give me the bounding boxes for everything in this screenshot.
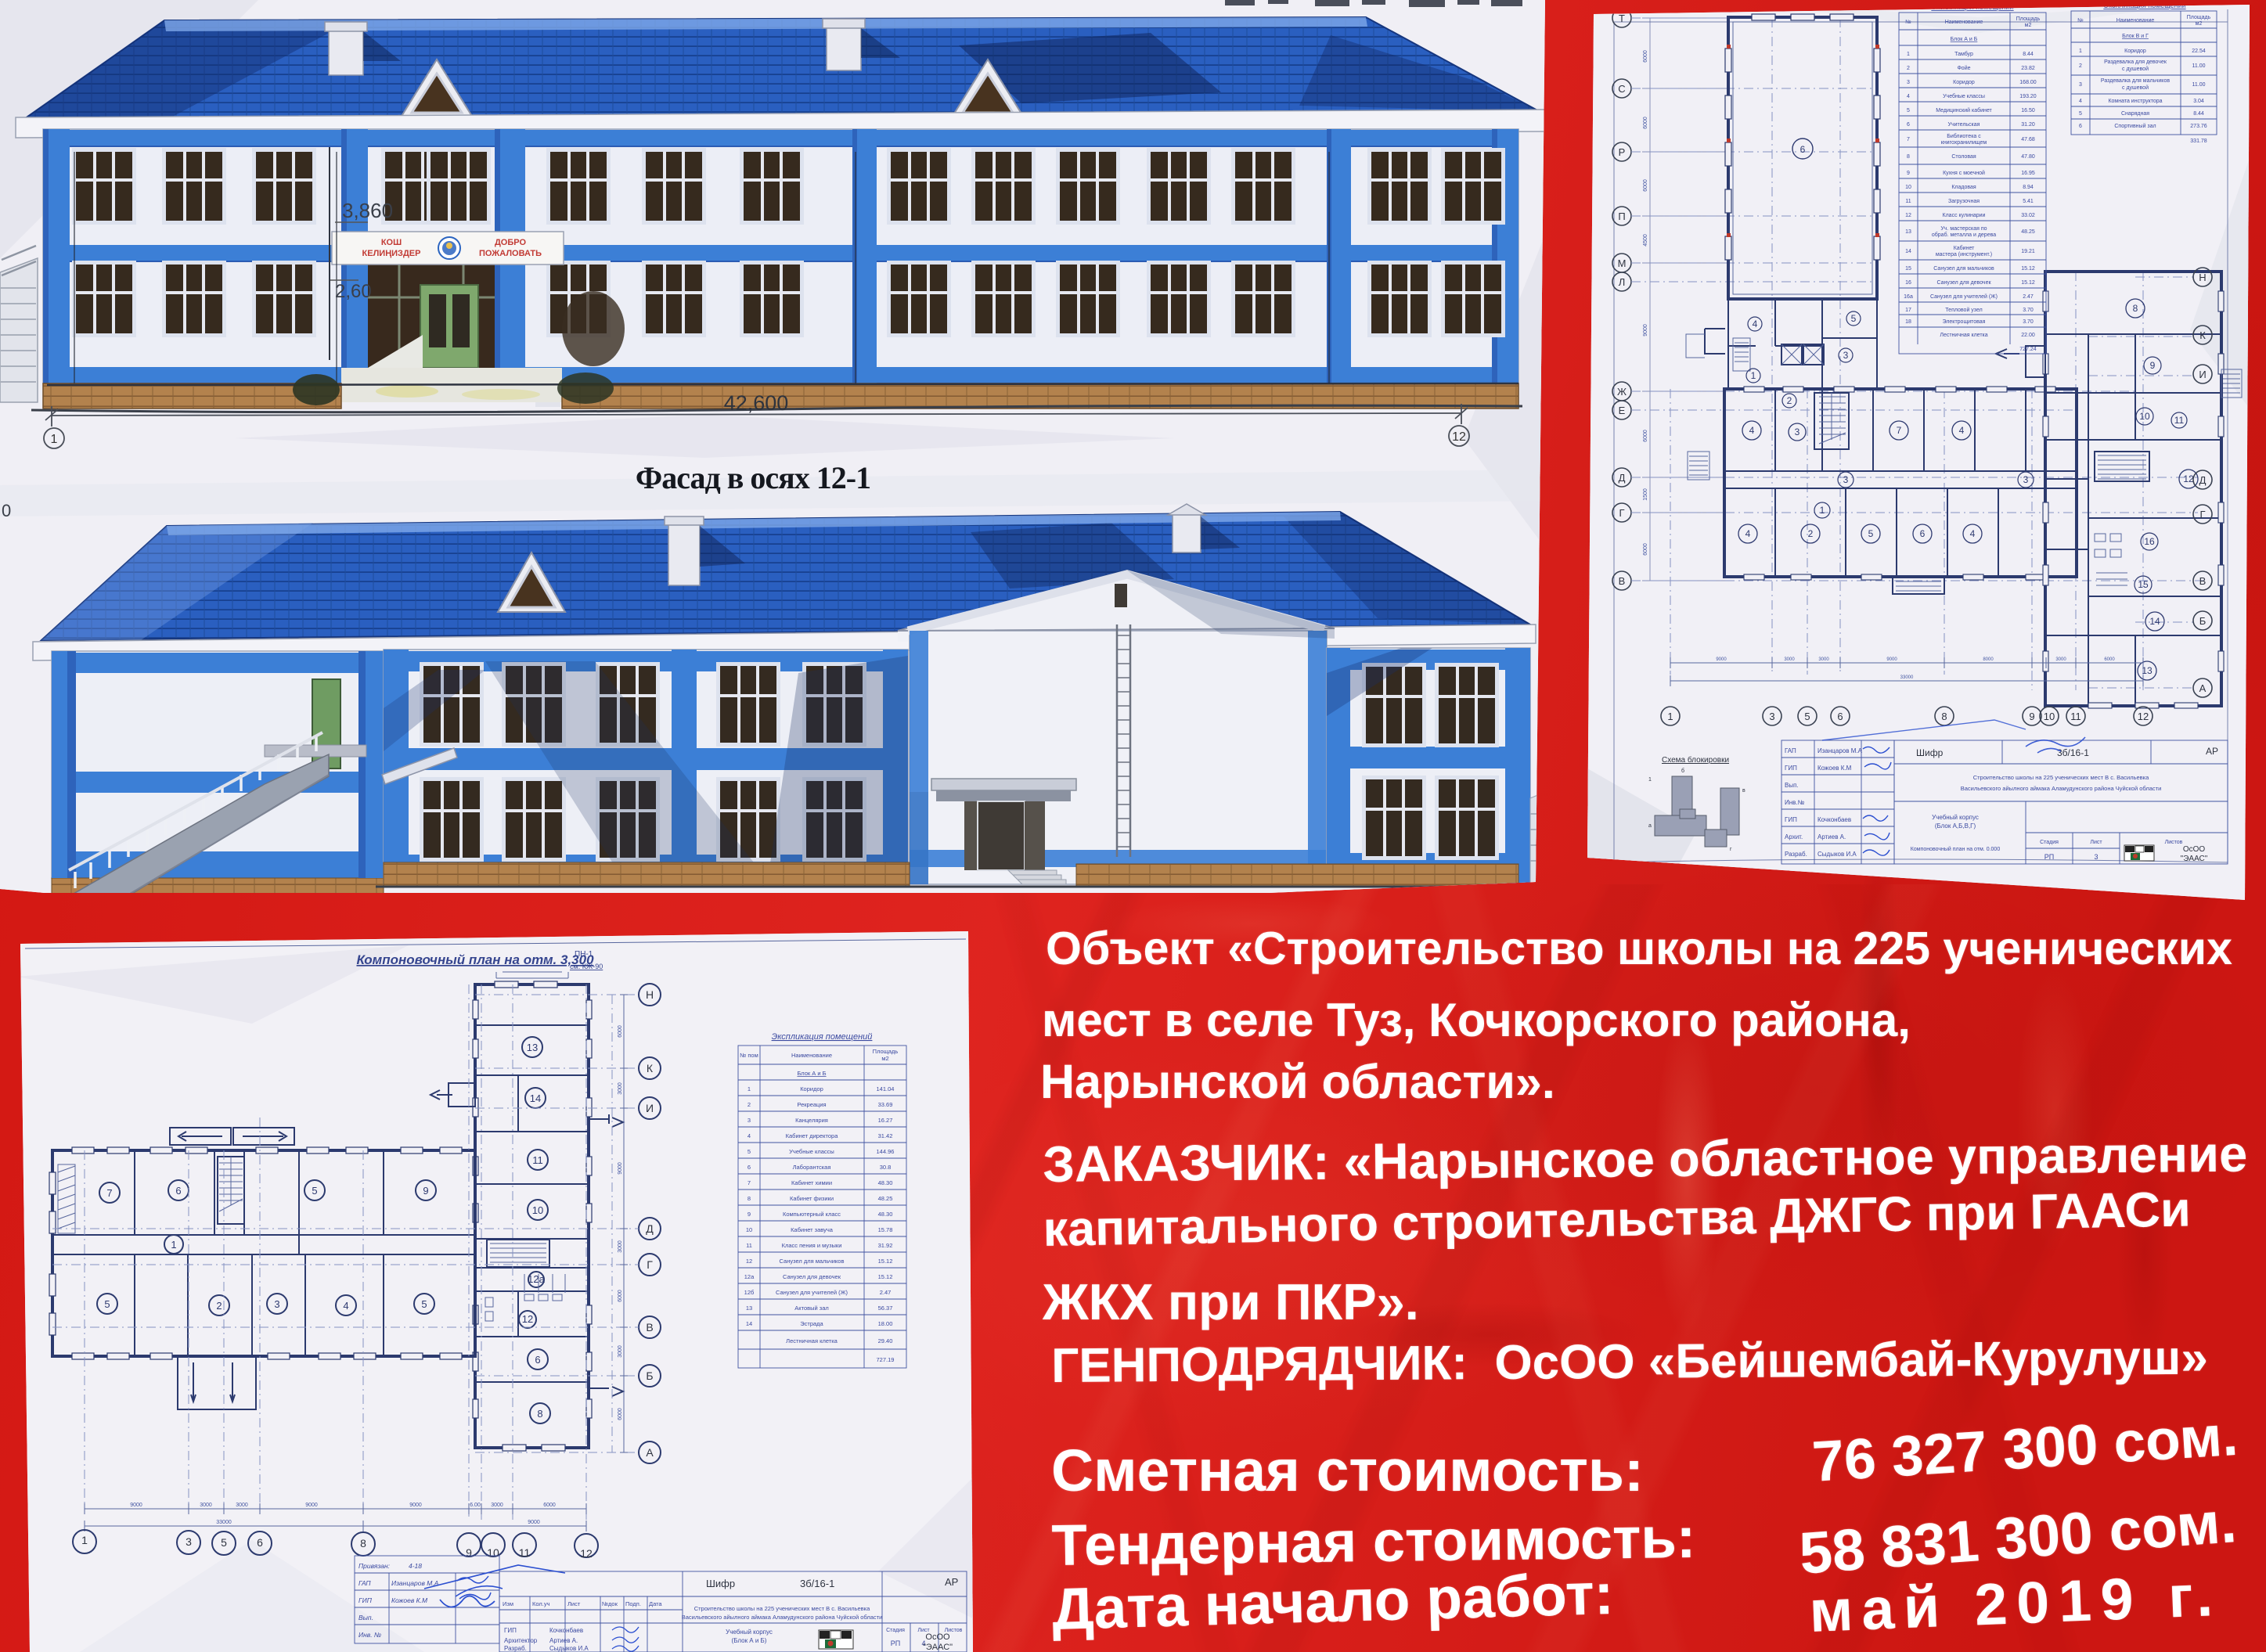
svg-text:16.95: 16.95 <box>2021 171 2035 176</box>
svg-text:Наименование: Наименование <box>791 1052 832 1059</box>
svg-text:1: 1 <box>2079 49 2082 54</box>
svg-text:2: 2 <box>2079 63 2082 69</box>
svg-text:4: 4 <box>343 1300 348 1312</box>
svg-text:Загрузочная: Загрузочная <box>1948 199 1980 204</box>
svg-text:8: 8 <box>748 1195 751 1202</box>
svg-text:3000: 3000 <box>236 1503 248 1508</box>
svg-text:10: 10 <box>1905 185 1911 190</box>
svg-text:АР: АР <box>945 1576 958 1588</box>
svg-text:4: 4 <box>1753 319 1758 329</box>
svg-text:5: 5 <box>104 1298 110 1310</box>
svg-text:3.70: 3.70 <box>2023 308 2034 313</box>
svg-text:Кладовая: Кладовая <box>1951 185 1976 190</box>
svg-text:12: 12 <box>2183 473 2194 484</box>
svg-text:6000: 6000 <box>2104 657 2115 662</box>
svg-text:5: 5 <box>2079 111 2082 117</box>
svg-text:33000: 33000 <box>1900 675 1914 680</box>
svg-text:Компьютерный класс: Компьютерный класс <box>783 1211 841 1218</box>
svg-text:2: 2 <box>1907 66 1910 71</box>
svg-text:обраб. металла и дерева: обраб. металла и дерева <box>1932 232 1996 238</box>
svg-text:18.00: 18.00 <box>878 1320 893 1327</box>
svg-text:12: 12 <box>522 1313 533 1325</box>
svg-text:№док: №док <box>602 1600 618 1607</box>
svg-text:11: 11 <box>746 1242 752 1249</box>
svg-text:Р: Р <box>1619 146 1626 158</box>
svg-text:см. КЖ-90: см. КЖ-90 <box>570 963 603 970</box>
svg-text:Изанцаров М.А: Изанцаров М.А <box>1817 747 1863 754</box>
svg-text:12а: 12а <box>744 1273 755 1280</box>
svg-text:3000: 3000 <box>491 1503 503 1508</box>
svg-text:8: 8 <box>1941 711 1947 722</box>
svg-text:5: 5 <box>312 1185 317 1197</box>
svg-text:ПОЖАЛОВАТЬ: ПОЖАЛОВАТЬ <box>479 249 542 258</box>
svg-text:Кабинет: Кабинет <box>1954 245 1975 251</box>
svg-text:Компоновочный план на отм. 0.0: Компоновочный план на отм. 0.000 <box>1911 846 2001 852</box>
svg-text:Электрощитовая: Электрощитовая <box>1943 319 1986 325</box>
svg-text:9: 9 <box>2150 360 2156 371</box>
svg-text:8: 8 <box>360 1537 366 1549</box>
svg-text:Кожоев К.М: Кожоев К.М <box>1817 765 1852 772</box>
svg-text:6: 6 <box>257 1536 263 1549</box>
svg-text:6.00: 6.00 <box>470 1503 481 1508</box>
svg-text:Б: Б <box>2199 615 2207 627</box>
svg-text:Кочконбаев: Кочконбаев <box>549 1627 583 1634</box>
svg-text:3: 3 <box>186 1535 192 1548</box>
svg-text:3: 3 <box>1843 350 1849 361</box>
svg-text:6000: 6000 <box>618 1408 623 1420</box>
svg-text:7: 7 <box>1907 137 1910 142</box>
svg-text:9000: 9000 <box>1643 324 1648 337</box>
svg-text:331.78: 331.78 <box>2190 139 2207 144</box>
svg-text:К: К <box>647 1062 654 1074</box>
svg-text:Кабинет завуча: Кабинет завуча <box>791 1226 834 1233</box>
svg-text:5: 5 <box>1851 313 1857 324</box>
svg-text:3б/16-1: 3б/16-1 <box>800 1578 834 1589</box>
svg-text:273.76: 273.76 <box>2190 124 2207 129</box>
svg-text:Лестничная клетка: Лестничная клетка <box>786 1337 838 1344</box>
svg-text:м2: м2 <box>2196 21 2203 27</box>
svg-text:4: 4 <box>1970 528 1976 539</box>
svg-text:Медицинский кабинет: Медицинский кабинет <box>1936 107 1992 113</box>
svg-text:книгохранилищем: книгохранилищем <box>1941 140 1987 146</box>
svg-text:Стадия: Стадия <box>2040 840 2059 845</box>
svg-text:7: 7 <box>748 1179 751 1186</box>
svg-text:А: А <box>2199 682 2207 694</box>
svg-text:3: 3 <box>1795 426 1800 437</box>
svg-text:42,600: 42,600 <box>724 391 789 415</box>
svg-text:а: а <box>1648 823 1652 829</box>
svg-text:15: 15 <box>2138 579 2149 590</box>
svg-text:Листов: Листов <box>2165 840 2183 845</box>
svg-text:Архитектор: Архитектор <box>504 1637 538 1644</box>
svg-text:Кочконбаев: Кочконбаев <box>1817 816 1851 823</box>
svg-text:2: 2 <box>748 1101 751 1108</box>
svg-text:Санузел для девочек: Санузел для девочек <box>783 1273 841 1280</box>
svg-text:Коридор: Коридор <box>1953 80 1975 85</box>
svg-text:1: 1 <box>51 433 58 446</box>
svg-text:6: 6 <box>2079 124 2082 129</box>
svg-text:Разраб.: Разраб. <box>504 1645 527 1652</box>
svg-text:Снарядная: Снарядная <box>2121 111 2149 117</box>
svg-text:16.50: 16.50 <box>2021 108 2035 113</box>
svg-text:10: 10 <box>746 1226 752 1233</box>
svg-text:Н: Н <box>2199 272 2206 283</box>
svg-text:56.37: 56.37 <box>878 1305 893 1312</box>
svg-text:8: 8 <box>2133 303 2138 314</box>
svg-text:Площадь: Площадь <box>2187 15 2211 20</box>
svg-text:1: 1 <box>81 1534 88 1546</box>
svg-text:30.8: 30.8 <box>880 1164 892 1171</box>
svg-text:15.12: 15.12 <box>2021 266 2035 272</box>
svg-text:С: С <box>1618 83 1625 95</box>
svg-text:КОШ: КОШ <box>381 238 402 247</box>
svg-text:7: 7 <box>1897 425 1902 436</box>
svg-text:Строительство школы на 225 уче: Строительство школы на 225 ученических м… <box>1973 774 2149 781</box>
svg-text:Е: Е <box>1619 405 1626 416</box>
svg-text:31.42: 31.42 <box>878 1132 893 1139</box>
svg-text:10: 10 <box>2044 711 2055 722</box>
svg-text:ГИП: ГИП <box>1785 765 1797 772</box>
svg-text:15.12: 15.12 <box>2021 280 2035 286</box>
svg-text:14: 14 <box>746 1320 752 1327</box>
svg-text:Актовый зал: Актовый зал <box>794 1305 829 1312</box>
svg-text:Кабинет физики: Кабинет физики <box>790 1195 834 1202</box>
svg-text:6: 6 <box>535 1354 540 1366</box>
svg-text:3: 3 <box>1769 711 1774 722</box>
svg-text:10: 10 <box>487 1546 499 1559</box>
svg-text:3000: 3000 <box>1784 657 1795 662</box>
svg-text:В: В <box>2199 575 2207 587</box>
svg-text:3: 3 <box>2079 82 2082 88</box>
svg-text:Т: Т <box>1619 13 1625 24</box>
svg-text:8000: 8000 <box>1983 657 1994 662</box>
svg-text:11: 11 <box>532 1154 543 1166</box>
svg-text:РП: РП <box>2044 853 2054 861</box>
svg-text:Площадь: Площадь <box>2016 16 2041 22</box>
svg-text:3: 3 <box>2094 853 2098 861</box>
svg-text:9: 9 <box>423 1185 428 1197</box>
svg-text:11: 11 <box>1905 199 1911 204</box>
svg-text:5: 5 <box>421 1298 427 1310</box>
svg-text:Учебные классы: Учебные классы <box>789 1148 834 1155</box>
svg-text:727.19: 727.19 <box>877 1356 895 1363</box>
svg-text:22.00: 22.00 <box>2021 333 2035 338</box>
svg-text:Эстрада: Эстрада <box>800 1320 823 1327</box>
svg-text:47.80: 47.80 <box>2021 154 2035 160</box>
svg-text:Наименование: Наименование <box>1945 20 1983 25</box>
svg-text:4: 4 <box>2079 99 2082 104</box>
svg-text:Кабинет химии: Кабинет химии <box>791 1179 832 1186</box>
svg-text:12б: 12б <box>744 1289 755 1296</box>
svg-text:Санузел для учителей (Ж): Санузел для учителей (Ж) <box>776 1289 848 1296</box>
svg-text:3000: 3000 <box>2055 657 2066 662</box>
svg-text:1: 1 <box>171 1239 176 1251</box>
svg-text:1500: 1500 <box>1643 488 1648 501</box>
svg-text:9000: 9000 <box>1716 657 1727 662</box>
svg-text:5: 5 <box>1804 711 1810 722</box>
svg-text:9000: 9000 <box>1886 657 1897 662</box>
svg-text:8.44: 8.44 <box>2193 111 2204 117</box>
svg-text:31.20: 31.20 <box>2021 122 2035 128</box>
svg-text:3: 3 <box>748 1117 751 1124</box>
svg-text:Рекреация: Рекреация <box>797 1101 826 1108</box>
svg-text:Шифр: Шифр <box>1916 747 1944 758</box>
svg-text:Л: Л <box>1619 276 1626 288</box>
svg-text:№: № <box>1905 20 1911 25</box>
svg-text:3: 3 <box>2023 474 2029 485</box>
svg-text:Учебный корпус: Учебный корпус <box>1932 814 1979 821</box>
svg-text:б: б <box>1681 768 1684 774</box>
svg-text:6000: 6000 <box>1643 50 1648 63</box>
svg-text:1: 1 <box>1648 777 1652 783</box>
svg-text:м2: м2 <box>2025 23 2032 28</box>
svg-text:10: 10 <box>2139 411 2150 422</box>
svg-text:Кожоев К.М: Кожоев К.М <box>391 1596 428 1604</box>
svg-text:Тамбур: Тамбур <box>1954 51 1973 57</box>
svg-text:6: 6 <box>1800 144 1806 155</box>
svg-text:Изм: Изм <box>503 1600 513 1607</box>
svg-text:Блок А и Б: Блок А и Б <box>797 1070 826 1077</box>
svg-text:Инв. №: Инв. № <box>358 1631 381 1639</box>
svg-text:ГАП: ГАП <box>1785 747 1796 754</box>
svg-text:3000: 3000 <box>618 1240 623 1253</box>
svg-text:Кабинет директора: Кабинет директора <box>786 1132 839 1139</box>
svg-text:Класс пения и музыки: Класс пения и музыки <box>782 1242 842 1249</box>
svg-text:13: 13 <box>746 1305 752 1312</box>
svg-text:4: 4 <box>748 1132 751 1139</box>
svg-text:6000: 6000 <box>1643 543 1648 556</box>
svg-text:2,60: 2,60 <box>335 281 372 302</box>
svg-text:Схема блокировки: Схема блокировки <box>1662 755 1729 765</box>
svg-text:48.25: 48.25 <box>2021 229 2035 235</box>
svg-text:Д: Д <box>1619 472 1626 484</box>
svg-text:15.78: 15.78 <box>878 1226 893 1233</box>
svg-text:Раздевалка для девочек: Раздевалка для девочек <box>2104 59 2167 65</box>
svg-text:9000: 9000 <box>130 1503 142 1508</box>
svg-text:Санузел для мальчиков: Санузел для мальчиков <box>780 1258 845 1265</box>
svg-text:Коридор: Коридор <box>800 1085 823 1092</box>
svg-text:ОсОО: ОсОО <box>925 1632 950 1642</box>
svg-text:4-18: 4-18 <box>409 1562 422 1570</box>
svg-text:№: № <box>2077 18 2084 23</box>
svg-text:8.44: 8.44 <box>2023 52 2034 57</box>
svg-text:"ЭААС": "ЭААС" <box>923 1643 953 1652</box>
svg-text:И: И <box>2199 369 2206 380</box>
svg-text:Вып.: Вып. <box>1785 782 1799 789</box>
svg-text:с душевой: с душевой <box>2122 66 2149 72</box>
svg-text:18: 18 <box>1905 319 1911 325</box>
svg-text:193.20: 193.20 <box>2019 94 2037 99</box>
svg-text:И: И <box>646 1102 654 1114</box>
svg-text:Н: Н <box>646 988 654 1001</box>
svg-text:Д: Д <box>646 1222 654 1235</box>
svg-text:Класс кулинарии: Класс кулинарии <box>1943 213 1986 218</box>
svg-text:Библиотека с: Библиотека с <box>1947 133 1981 139</box>
svg-text:144.96: 144.96 <box>877 1148 895 1155</box>
svg-text:6: 6 <box>175 1185 181 1197</box>
svg-text:16: 16 <box>2144 536 2155 547</box>
svg-text:Экспликация помещений: Экспликация помещений <box>772 1032 873 1042</box>
svg-text:г: г <box>1730 847 1732 852</box>
svg-text:ГИП: ГИП <box>504 1627 517 1634</box>
svg-text:Г: Г <box>1619 507 1624 519</box>
svg-text:3000: 3000 <box>618 1082 623 1095</box>
svg-text:Столовая: Столовая <box>1951 154 1976 160</box>
svg-text:17: 17 <box>1905 308 1911 313</box>
svg-text:12: 12 <box>2138 711 2149 722</box>
svg-text:2: 2 <box>1787 395 1792 406</box>
svg-text:Компоновочный план на отм. 3,3: Компоновочный план на отм. 3,300 <box>356 952 594 967</box>
svg-text:1: 1 <box>748 1085 751 1092</box>
svg-text:19.21: 19.21 <box>2021 249 2035 254</box>
svg-text:№ пом: № пом <box>740 1052 758 1059</box>
svg-text:168.00: 168.00 <box>2019 80 2037 85</box>
svg-text:5: 5 <box>1907 108 1910 113</box>
svg-text:12: 12 <box>1452 430 1466 444</box>
svg-text:3: 3 <box>274 1298 279 1310</box>
svg-text:29.40: 29.40 <box>878 1337 893 1344</box>
svg-text:Сыдыков И.А: Сыдыков И.А <box>549 1645 589 1652</box>
svg-text:Лист: Лист <box>2090 840 2102 845</box>
svg-text:15: 15 <box>1905 266 1911 272</box>
svg-text:Блок А и Б: Блок А и Б <box>1951 37 1978 42</box>
svg-text:АР: АР <box>2206 746 2218 757</box>
svg-text:Вып.: Вып. <box>358 1614 373 1621</box>
svg-text:Комната инструктора: Комната инструктора <box>2108 99 2162 104</box>
svg-text:12а: 12а <box>528 1273 545 1285</box>
svg-text:33000: 33000 <box>216 1520 232 1525</box>
svg-text:Артиев А.: Артиев А. <box>549 1637 578 1644</box>
svg-text:11: 11 <box>519 1546 531 1559</box>
svg-text:5: 5 <box>748 1148 751 1155</box>
svg-text:Г: Г <box>2199 509 2205 520</box>
svg-text:16.27: 16.27 <box>878 1117 893 1124</box>
svg-text:8.94: 8.94 <box>2023 185 2034 190</box>
svg-text:9: 9 <box>1907 171 1910 176</box>
svg-text:Подп.: Подп. <box>625 1600 641 1607</box>
svg-text:ДОБРО: ДОБРО <box>495 238 526 247</box>
svg-text:Учебный корпус: Учебный корпус <box>726 1629 773 1636</box>
svg-text:4500: 4500 <box>1643 234 1648 247</box>
svg-text:3: 3 <box>1907 80 1910 85</box>
svg-text:6000: 6000 <box>618 1290 623 1302</box>
svg-text:9: 9 <box>748 1211 751 1218</box>
svg-text:Блок В и Г: Блок В и Г <box>2122 34 2149 39</box>
svg-text:8: 8 <box>537 1408 542 1420</box>
svg-text:Б: Б <box>646 1369 653 1382</box>
svg-text:в: в <box>1742 788 1745 794</box>
svg-text:141.04: 141.04 <box>877 1085 895 1092</box>
svg-text:Изанцаров М.А: Изанцаров М.А <box>391 1579 439 1587</box>
svg-text:Санузел для учителей (Ж): Санузел для учителей (Ж) <box>1930 293 1998 300</box>
svg-text:К: К <box>2199 329 2206 341</box>
svg-text:Артиев А.: Артиев А. <box>1817 833 1846 840</box>
svg-text:М: М <box>1618 257 1627 269</box>
svg-text:2.47: 2.47 <box>2023 294 2034 300</box>
svg-text:16: 16 <box>1905 280 1911 286</box>
svg-text:Стадия: Стадия <box>886 1628 905 1633</box>
svg-text:Архит.: Архит. <box>1785 833 1803 840</box>
svg-text:2: 2 <box>216 1300 222 1312</box>
svg-text:Васильевского айылного аймака: Васильевского айылного аймака Аламудунск… <box>1961 785 2162 792</box>
svg-text:11: 11 <box>2070 711 2081 722</box>
svg-text:11.00: 11.00 <box>2192 82 2206 88</box>
svg-text:5.41: 5.41 <box>2023 199 2034 204</box>
svg-text:4: 4 <box>1749 425 1755 436</box>
svg-text:3б/16-1: 3б/16-1 <box>2057 747 2089 758</box>
svg-text:В: В <box>1619 575 1626 587</box>
svg-text:6000: 6000 <box>1643 179 1648 192</box>
svg-text:ГИП: ГИП <box>1785 816 1797 823</box>
svg-text:3000: 3000 <box>1818 657 1829 662</box>
svg-text:Разраб.: Разраб. <box>1785 851 1807 858</box>
svg-text:Привязан:: Привязан: <box>358 1562 391 1570</box>
svg-text:3000: 3000 <box>618 1345 623 1358</box>
svg-text:6: 6 <box>1837 711 1843 722</box>
svg-text:12: 12 <box>580 1547 593 1560</box>
svg-text:Лист: Лист <box>567 1600 581 1607</box>
svg-text:Сыдыков И.А: Сыдыков И.А <box>1817 851 1857 858</box>
svg-text:12: 12 <box>746 1258 752 1265</box>
svg-text:6: 6 <box>1920 528 1926 539</box>
svg-text:8: 8 <box>1907 154 1910 160</box>
svg-text:48.30: 48.30 <box>878 1179 893 1186</box>
svg-text:9: 9 <box>466 1546 472 1559</box>
svg-text:КЕЛИҢИЗДЕР: КЕЛИҢИЗДЕР <box>362 249 421 258</box>
svg-text:6000: 6000 <box>1643 117 1648 129</box>
svg-text:13: 13 <box>1905 229 1911 235</box>
svg-text:Инв.№: Инв.№ <box>1785 799 1805 806</box>
svg-text:7: 7 <box>106 1187 112 1199</box>
svg-text:РП: РП <box>891 1639 900 1647</box>
svg-text:11: 11 <box>2174 415 2185 426</box>
svg-text:4: 4 <box>1907 94 1910 99</box>
svg-text:П: П <box>1618 211 1625 222</box>
svg-text:6000: 6000 <box>618 1025 623 1038</box>
svg-text:9000: 9000 <box>305 1503 318 1508</box>
svg-text:Васильевского айылного аймака: Васильевского айылного аймака Аламудунск… <box>682 1614 883 1621</box>
svg-text:9000: 9000 <box>618 1162 623 1175</box>
svg-text:Г: Г <box>647 1258 653 1271</box>
svg-text:9: 9 <box>2029 711 2034 722</box>
svg-text:с душевой: с душевой <box>2122 85 2149 91</box>
svg-text:33.02: 33.02 <box>2021 213 2035 218</box>
svg-text:33.69: 33.69 <box>878 1101 893 1108</box>
svg-text:3.04: 3.04 <box>2193 99 2204 104</box>
svg-text:ПН-1: ПН-1 <box>575 950 593 959</box>
svg-text:Кухня с моечной: Кухня с моечной <box>1943 170 1985 176</box>
svg-text:Площадь: Площадь <box>873 1048 899 1055</box>
svg-text:0: 0 <box>2 501 11 520</box>
svg-text:1: 1 <box>1907 52 1910 57</box>
svg-text:23.82: 23.82 <box>2021 66 2035 71</box>
svg-text:Фасад в осях 12-1: Фасад в осях 12-1 <box>636 460 870 495</box>
svg-text:4: 4 <box>1745 528 1751 539</box>
svg-text:6000: 6000 <box>543 1503 556 1508</box>
svg-text:47.68: 47.68 <box>2021 137 2035 142</box>
svg-text:Кол.уч: Кол.уч <box>532 1600 550 1607</box>
svg-text:3.70: 3.70 <box>2023 319 2034 325</box>
svg-text:ГАП: ГАП <box>358 1579 371 1587</box>
svg-text:Учебные классы: Учебные классы <box>1943 93 1985 99</box>
svg-text:4: 4 <box>1959 425 1965 436</box>
svg-text:(Блок А и Б): (Блок А и Б) <box>732 1637 767 1644</box>
svg-text:10: 10 <box>532 1204 543 1216</box>
svg-text:Д: Д <box>2199 474 2207 486</box>
svg-text:14: 14 <box>2149 616 2160 627</box>
svg-text:727.24: 727.24 <box>2019 347 2037 352</box>
svg-text:Ж: Ж <box>1617 386 1627 398</box>
